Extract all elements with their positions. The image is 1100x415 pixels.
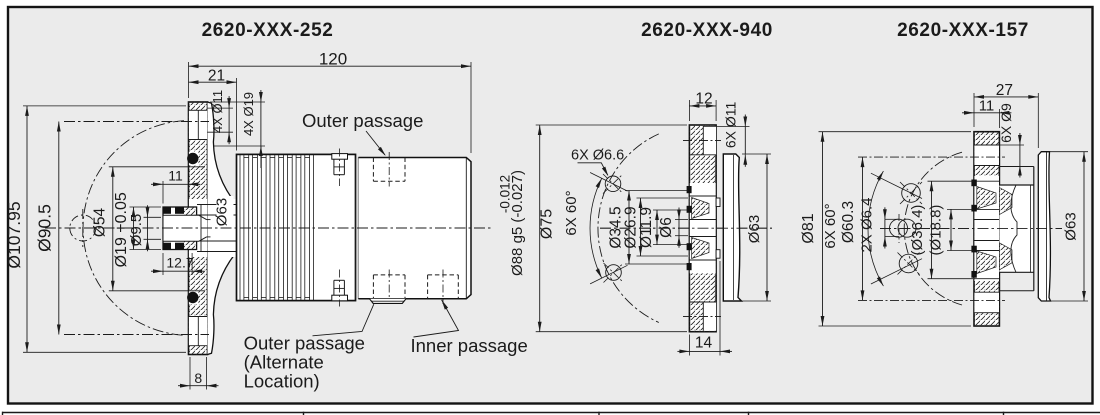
- svg-text:14: 14: [695, 335, 713, 352]
- svg-text:12: 12: [695, 91, 712, 108]
- svg-text:Location): Location): [244, 371, 320, 392]
- svg-text:Ø81: Ø81: [800, 213, 817, 243]
- svg-text:8: 8: [194, 370, 202, 386]
- svg-text:6X Ø9: 6X Ø9: [998, 103, 1014, 143]
- svg-text:Ø88 g5 (-0.027): Ø88 g5 (-0.027): [509, 170, 526, 276]
- svg-text:4X Ø19: 4X Ø19: [241, 92, 256, 136]
- svg-text:12.7: 12.7: [166, 254, 193, 270]
- svg-text:2X Ø6.4: 2X Ø6.4: [859, 197, 876, 252]
- svg-text:4X Ø11: 4X Ø11: [210, 90, 225, 133]
- svg-text:Ø63: Ø63: [214, 198, 231, 226]
- svg-text:Ø63: Ø63: [746, 215, 763, 243]
- svg-text:21: 21: [208, 68, 225, 85]
- svg-text:6X Ø6.6: 6X Ø6.6: [571, 148, 624, 164]
- svg-text:(Ø18.8): (Ø18.8): [928, 205, 945, 256]
- svg-text:(Ø36.4): (Ø36.4): [909, 205, 926, 256]
- svg-text:Ø63: Ø63: [1063, 212, 1080, 240]
- svg-text:Ø107.95: Ø107.95: [4, 201, 24, 268]
- svg-text:2620-XXX-157: 2620-XXX-157: [897, 20, 1029, 41]
- svg-text:120: 120: [319, 50, 347, 69]
- svg-text:Outer passage: Outer passage: [244, 333, 365, 354]
- svg-text:2620-XXX-252: 2620-XXX-252: [202, 20, 334, 41]
- svg-text:Outer passage: Outer passage: [302, 110, 423, 131]
- svg-text:27: 27: [996, 82, 1013, 99]
- svg-text:Ø11.9: Ø11.9: [638, 207, 655, 248]
- svg-text:Ø60.3: Ø60.3: [840, 201, 857, 243]
- svg-text:6X Ø11: 6X Ø11: [722, 101, 738, 148]
- svg-text:(Alternate: (Alternate: [244, 352, 324, 373]
- svg-text:11: 11: [979, 98, 995, 115]
- svg-text:Ø54: Ø54: [92, 207, 109, 237]
- svg-text:Ø9.5: Ø9.5: [128, 214, 145, 247]
- svg-text:Inner passage: Inner passage: [411, 335, 528, 356]
- svg-text:11: 11: [168, 167, 183, 183]
- svg-text:Ø75: Ø75: [539, 209, 556, 239]
- svg-text:Ø26.9: Ø26.9: [623, 206, 640, 248]
- svg-text:Ø6: Ø6: [658, 217, 675, 238]
- svg-text:6X 60°: 6X 60°: [822, 203, 839, 248]
- svg-text:6X 60°: 6X 60°: [563, 190, 580, 235]
- svg-text:2620-XXX-940: 2620-XXX-940: [641, 20, 773, 41]
